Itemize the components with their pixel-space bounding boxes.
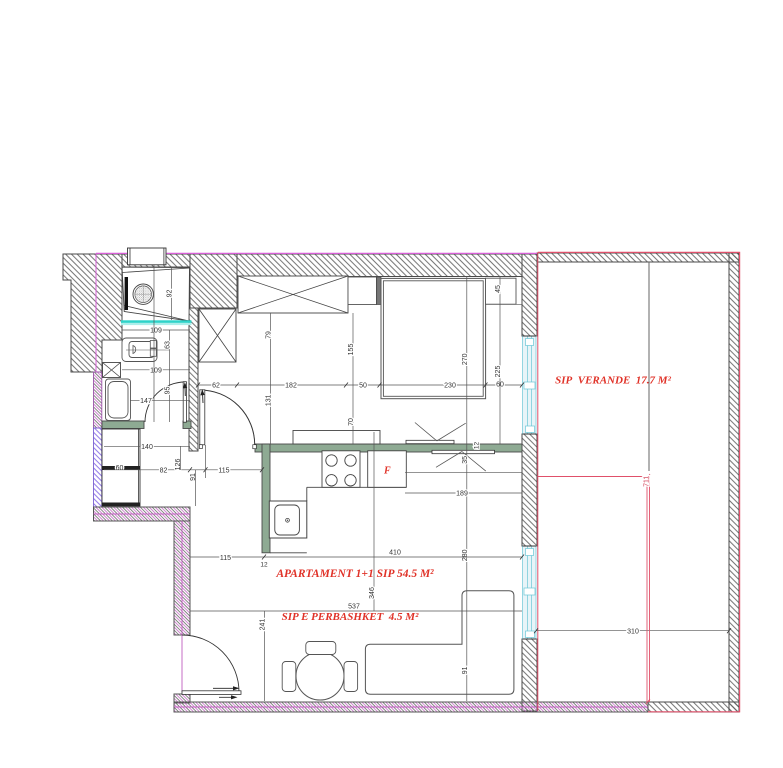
svg-text:82: 82 — [160, 467, 168, 474]
svg-text:241: 241 — [260, 619, 267, 631]
svg-text:131: 131 — [266, 394, 273, 406]
svg-text:APARTAMENT 1+1 SIP 54.5 M²: APARTAMENT 1+1 SIP 54.5 M² — [275, 568, 434, 580]
svg-text:12: 12 — [260, 562, 268, 569]
svg-text:225: 225 — [495, 366, 502, 378]
svg-text:346: 346 — [369, 587, 376, 599]
svg-text:F: F — [383, 466, 391, 477]
svg-text:410: 410 — [389, 550, 401, 557]
svg-text:60: 60 — [116, 465, 124, 472]
svg-text:79: 79 — [266, 331, 273, 339]
svg-text:SIP VERANDE 17.7 M²: SIP VERANDE 17.7 M² — [555, 375, 671, 387]
svg-text:12: 12 — [474, 442, 481, 450]
svg-text:230: 230 — [444, 383, 456, 390]
svg-text:63: 63 — [165, 341, 172, 349]
svg-text:140: 140 — [141, 444, 153, 451]
svg-text:70: 70 — [348, 418, 355, 426]
svg-text:50: 50 — [359, 383, 367, 390]
svg-text:189: 189 — [456, 491, 468, 498]
svg-text:109: 109 — [150, 368, 162, 375]
svg-text:35: 35 — [462, 456, 469, 464]
svg-text:115: 115 — [220, 555, 231, 562]
svg-text:270: 270 — [462, 353, 469, 365]
svg-text:91: 91 — [190, 473, 197, 481]
svg-text:537: 537 — [348, 604, 360, 611]
svg-text:147: 147 — [140, 398, 152, 405]
svg-text:155: 155 — [348, 344, 355, 356]
svg-text:92: 92 — [167, 290, 174, 298]
svg-text:SIP E PERBASHKET 4.5 M²: SIP E PERBASHKET 4.5 M² — [282, 611, 419, 623]
svg-text:126: 126 — [175, 459, 182, 471]
svg-text:280: 280 — [462, 549, 469, 561]
svg-text:45: 45 — [495, 285, 502, 293]
svg-text:62: 62 — [212, 383, 220, 390]
svg-text:91: 91 — [462, 666, 469, 674]
svg-text:95: 95 — [165, 387, 172, 395]
svg-text:711: 711 — [643, 476, 650, 487]
svg-text:109: 109 — [150, 328, 162, 335]
svg-text:115: 115 — [218, 468, 229, 475]
svg-text:182: 182 — [285, 383, 297, 390]
svg-text:310: 310 — [627, 628, 639, 635]
